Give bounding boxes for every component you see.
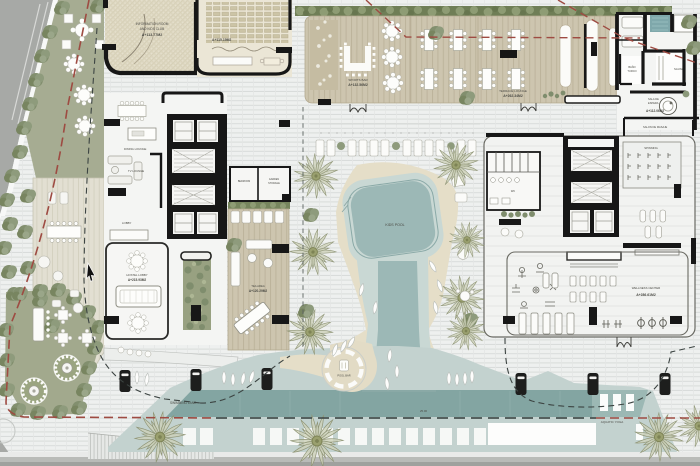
svg-text:GARDEN: GARDEN: [269, 178, 280, 181]
svg-text:TURCO: TURCO: [627, 69, 636, 73]
svg-text:POOL BAR: POOL BAR: [337, 374, 350, 378]
svg-text:AND KIDS CLUB: AND KIDS CLUB: [140, 27, 164, 31]
svg-text:SALON DE MASAJE: SALON DE MASAJE: [643, 125, 667, 129]
svg-text:LOBBY: LOBBY: [122, 221, 131, 225]
svg-text:INFORMATION ROOM: INFORMATION ROOM: [136, 22, 169, 26]
svg-text:25.00: 25.00: [420, 409, 427, 413]
svg-text:HOSTEL LOBBY: HOSTEL LOBBY: [126, 273, 147, 277]
svg-text:ESPERA: ESPERA: [648, 101, 659, 105]
svg-text:A+112.06M2: A+112.06M2: [646, 109, 664, 113]
svg-text:A+113.77M2: A+113.77M2: [142, 33, 162, 37]
svg-text:A+115.19M2: A+115.19M2: [212, 38, 231, 42]
svg-text:TERRACE LOUNGE: TERRACE LOUNGE: [499, 89, 527, 93]
svg-text:BEDROOM: BEDROOM: [238, 180, 250, 183]
svg-text:A+286.61M2: A+286.61M2: [636, 293, 656, 297]
svg-text:A+262.34M2: A+262.34M2: [503, 94, 523, 98]
svg-text:A+120.29M2: A+120.29M2: [249, 289, 268, 293]
svg-text:SPINNING: SPINNING: [644, 146, 658, 150]
svg-text:STORAGE: STORAGE: [268, 182, 280, 185]
svg-text:SALA DE: SALA DE: [648, 97, 659, 101]
svg-text:SPORTS BAR: SPORTS BAR: [348, 78, 368, 82]
svg-text:TV LOUNGE: TV LOUNGE: [128, 169, 144, 173]
svg-text:SWIMMING LANE: SWIMMING LANE: [170, 401, 196, 405]
svg-text:WELLNESS CENTER: WELLNESS CENTER: [632, 286, 660, 290]
svg-text:A+132.56M2: A+132.56M2: [348, 83, 368, 87]
svg-text:KIDS POOL: KIDS POOL: [385, 223, 404, 227]
svg-text:WC: WC: [511, 189, 515, 193]
svg-text:SAUNA: SAUNA: [674, 67, 684, 71]
svg-text:A+215.93M2: A+215.93M2: [128, 278, 147, 282]
svg-text:DINING LOUNGE: DINING LOUNGE: [124, 147, 147, 151]
svg-text:TEA AREA: TEA AREA: [251, 284, 265, 288]
svg-text:AQUATIC YOGA: AQUATIC YOGA: [601, 420, 624, 424]
